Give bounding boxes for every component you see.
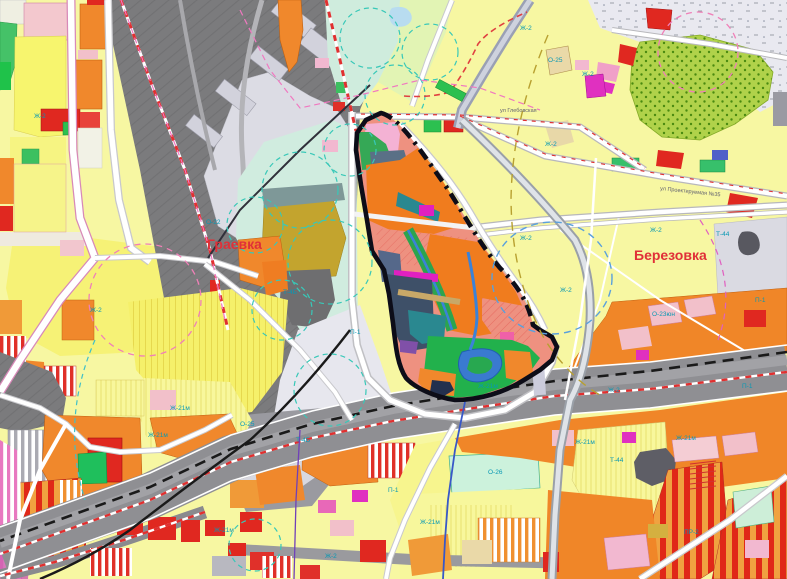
svg-text:Ж-21м: Ж-21м [676, 435, 696, 442]
svg-text:Т-44: Т-44 [716, 231, 730, 238]
svg-text:О-26: О-26 [488, 469, 503, 476]
svg-text:ул Глебовская: ул Глебовская [500, 108, 537, 114]
svg-text:Ж-2: Ж-2 [582, 71, 594, 78]
svg-text:Ж-21м: Ж-21м [148, 432, 168, 439]
svg-text:О-25: О-25 [240, 421, 255, 428]
svg-text:Ж-21м: Ж-21м [170, 405, 190, 412]
svg-text:П-1: П-1 [742, 383, 753, 390]
svg-text:Граевка: Граевка [207, 236, 262, 252]
svg-text:Ж-21м: Ж-21м [214, 527, 234, 534]
svg-text:Березовка: Березовка [634, 247, 707, 263]
svg-text:О-23юн: О-23юн [652, 311, 675, 318]
svg-text:П-1: П-1 [755, 297, 766, 304]
svg-text:Ж-2: Ж-2 [520, 235, 532, 242]
svg-text:Ж-2: Ж-2 [34, 113, 46, 120]
svg-text:П-1: П-1 [388, 487, 399, 494]
svg-text:Т-4Б: Т-4Б [283, 289, 297, 296]
svg-text:Т-44: Т-44 [610, 457, 624, 464]
svg-text:ПР-2: ПР-2 [684, 529, 699, 536]
svg-text:П-1: П-1 [350, 329, 361, 336]
svg-text:Ж-21м: Ж-21м [420, 519, 440, 526]
svg-text:Ж-2: Ж-2 [560, 287, 572, 294]
svg-text:Ж-2: Ж-2 [545, 141, 557, 148]
svg-text:Т-4Б: Т-4Б [296, 437, 310, 444]
svg-text:О-25: О-25 [548, 57, 563, 64]
svg-text:О-22: О-22 [206, 219, 221, 226]
svg-text:Ж-2: Ж-2 [520, 25, 532, 32]
svg-text:Ж-21м: Ж-21м [575, 439, 595, 446]
svg-text:Ж-21м: Ж-21м [478, 383, 498, 390]
svg-text:Ж-2: Ж-2 [608, 387, 620, 394]
svg-text:Ж-2: Ж-2 [90, 307, 102, 314]
svg-text:Ж-2: Ж-2 [325, 553, 337, 560]
svg-text:Ж-2: Ж-2 [650, 227, 662, 234]
